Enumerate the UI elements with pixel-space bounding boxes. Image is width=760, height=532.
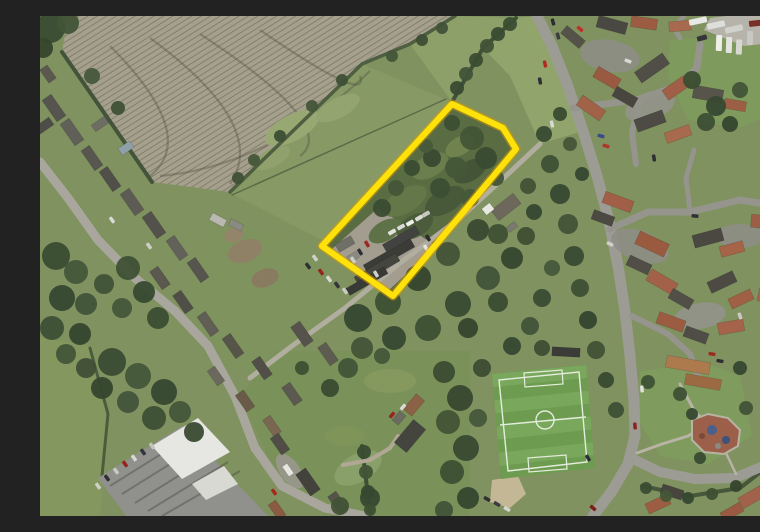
tree-cluster: [491, 27, 505, 41]
tree-cluster: [321, 379, 339, 397]
tree-cluster: [575, 167, 589, 181]
tree-cluster: [232, 172, 244, 184]
tree-cluster: [550, 184, 570, 204]
tree-cluster: [125, 363, 151, 389]
tree-cluster: [450, 81, 464, 95]
tree-cluster: [147, 307, 169, 329]
tree-cluster: [460, 126, 484, 150]
tree-cluster: [295, 361, 309, 375]
tree-cluster: [563, 137, 577, 151]
tree-cluster: [706, 96, 726, 116]
tree-cluster: [488, 224, 508, 244]
building-roof: [669, 20, 692, 32]
tree-cluster: [447, 385, 473, 411]
tree-cluster: [56, 344, 76, 364]
tree-cluster: [733, 361, 747, 375]
tree-cluster: [608, 402, 624, 418]
tree-cluster: [488, 292, 508, 312]
tree-cluster: [133, 281, 155, 303]
tree-cluster: [579, 311, 597, 329]
tree-cluster: [151, 379, 177, 405]
vehicle: [726, 37, 733, 53]
tree-cluster: [359, 465, 373, 479]
tree-cluster: [416, 34, 428, 46]
tree-cluster: [112, 298, 132, 318]
tree-cluster: [571, 279, 589, 297]
tree-cluster: [520, 178, 536, 194]
tree-cluster: [673, 387, 687, 401]
tree-cluster: [732, 82, 748, 98]
tree-cluster: [445, 157, 467, 179]
tree-cluster: [533, 289, 551, 307]
tree-cluster: [436, 410, 460, 434]
tree-cluster: [98, 348, 126, 376]
tree-cluster: [75, 293, 97, 315]
tree-cluster: [475, 147, 497, 169]
tree-cluster: [91, 377, 113, 399]
tree-cluster: [388, 180, 404, 196]
tree-cluster: [517, 227, 535, 245]
tree-cluster: [683, 71, 701, 89]
play-equipment: [722, 436, 730, 444]
tree-cluster: [553, 107, 567, 121]
tree-cluster: [697, 113, 715, 131]
tree-cluster: [76, 358, 96, 378]
vehicle: [633, 422, 637, 429]
tree-cluster: [706, 488, 718, 500]
tree-cluster: [351, 337, 373, 359]
tree-cluster: [440, 460, 464, 484]
tree-cluster: [373, 199, 391, 217]
tree-cluster: [730, 480, 742, 492]
tree-cluster: [694, 452, 706, 464]
tree-cluster: [453, 435, 479, 461]
building-roof: [552, 347, 580, 357]
tree-cluster: [501, 247, 523, 269]
tree-cluster: [386, 50, 398, 62]
tree-cluster: [536, 126, 552, 142]
tree-cluster: [430, 178, 450, 198]
tree-cluster: [660, 490, 672, 502]
tree-cluster: [111, 101, 125, 115]
tree-cluster: [682, 492, 694, 504]
tree-cluster: [476, 266, 500, 290]
tree-cluster: [686, 408, 698, 420]
play-equipment: [707, 425, 717, 435]
vehicle: [691, 214, 698, 218]
tree-cluster: [722, 116, 738, 132]
tree-cluster: [84, 68, 100, 84]
tree-cluster: [503, 17, 517, 31]
tree-cluster: [458, 318, 478, 338]
tree-cluster: [169, 401, 191, 423]
tree-cluster: [544, 260, 560, 276]
tree-cluster: [534, 340, 550, 356]
tree-cluster: [444, 115, 460, 131]
tree-cluster: [457, 487, 479, 509]
aerial-map-canvas: [40, 16, 760, 516]
tree-cluster: [469, 409, 487, 427]
tree-cluster: [357, 445, 371, 459]
tree-cluster: [433, 361, 455, 383]
tree-cluster: [473, 359, 491, 377]
tree-cluster: [64, 260, 88, 284]
tree-cluster: [558, 214, 578, 234]
ground-patch: [325, 426, 365, 446]
tree-cluster: [469, 53, 483, 67]
tree-cluster: [521, 317, 539, 335]
tree-cluster: [117, 391, 139, 413]
tree-cluster: [40, 316, 64, 340]
tree-cluster: [598, 372, 614, 388]
tree-cluster: [382, 326, 406, 350]
tree-cluster: [503, 337, 521, 355]
building-roof: [750, 214, 760, 230]
tree-cluster: [274, 130, 286, 142]
tree-cluster: [94, 274, 114, 294]
tree-cluster: [480, 39, 494, 53]
play-equipment: [715, 443, 721, 449]
tree-cluster: [338, 358, 358, 378]
vehicle: [640, 385, 644, 392]
tree-cluster: [564, 246, 584, 266]
vehicle: [736, 39, 743, 54]
tree-cluster: [344, 304, 372, 332]
tree-cluster: [739, 401, 753, 415]
tree-cluster: [69, 323, 91, 345]
play-equipment: [699, 433, 705, 439]
vehicle: [747, 31, 753, 45]
tree-cluster: [184, 422, 204, 442]
tree-cluster: [142, 406, 166, 430]
tree-cluster: [415, 315, 441, 341]
tree-cluster: [526, 204, 542, 220]
tree-cluster: [436, 22, 448, 34]
tree-cluster: [459, 67, 473, 81]
tree-cluster: [116, 256, 140, 280]
tree-cluster: [404, 160, 420, 176]
ground-patch: [364, 369, 416, 393]
tree-cluster: [361, 485, 375, 499]
tree-cluster: [306, 100, 318, 112]
tree-cluster: [248, 154, 260, 166]
tree-cluster: [541, 155, 559, 173]
aerial-photo: [40, 16, 760, 516]
tree-cluster: [445, 291, 471, 317]
tree-cluster: [374, 348, 390, 364]
tree-cluster: [587, 341, 605, 359]
tree-cluster: [49, 285, 75, 311]
tree-cluster: [364, 504, 376, 516]
tree-cluster: [467, 219, 489, 241]
tree-cluster: [336, 74, 348, 86]
vehicle: [716, 35, 723, 51]
tree-cluster: [640, 482, 652, 494]
